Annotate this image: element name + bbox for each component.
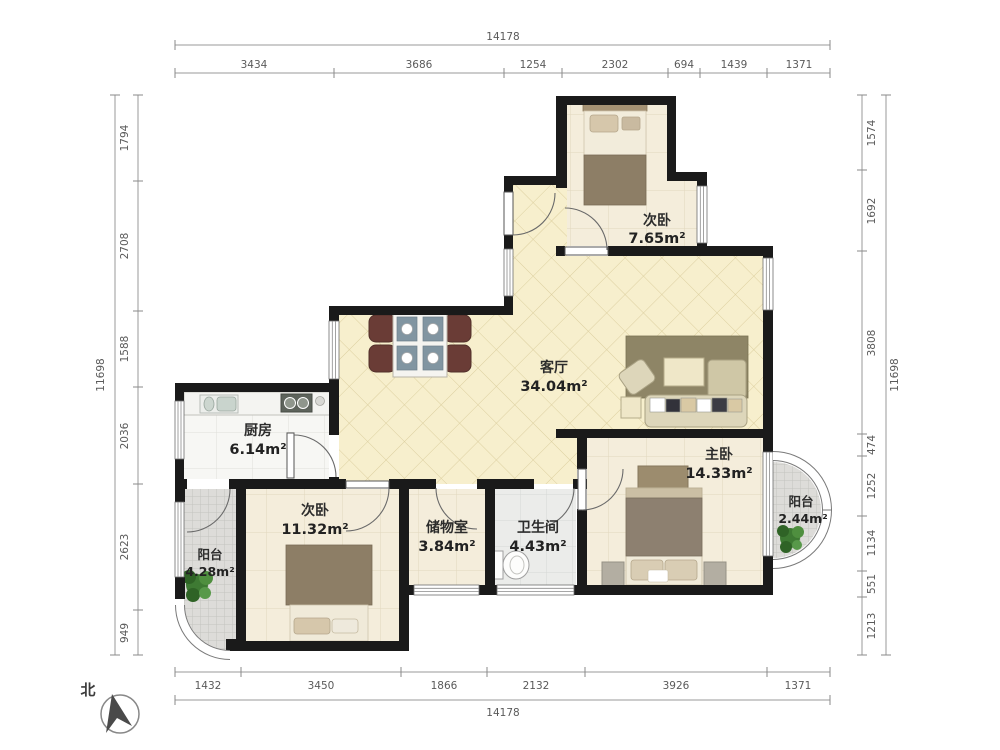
window <box>329 321 339 379</box>
dining-chair <box>369 315 396 342</box>
dim-label: 1866 <box>431 680 458 692</box>
window <box>763 258 773 310</box>
compass: 北 <box>80 682 139 733</box>
headboard <box>638 466 688 488</box>
dim-label: 2708 <box>119 233 131 260</box>
dim-label: 3686 <box>406 59 433 71</box>
dim-label: 1254 <box>520 59 547 71</box>
balcony-slider-window <box>763 452 773 556</box>
room-bath-area: 4.43m² <box>509 539 566 555</box>
dim-label: 2302 <box>602 59 629 71</box>
dining-chair <box>444 315 471 342</box>
coffee-table <box>664 358 704 386</box>
dim-label: 1252 <box>866 473 878 500</box>
bed-top-bedroom <box>583 103 647 205</box>
floor-plan-page: 次卧 7.65m² 客厅 34.04m² 厨房 6.14m² 次卧 11.32m… <box>0 0 1000 750</box>
dining-chair <box>369 345 396 372</box>
room-bath-name: 卫生间 <box>517 519 559 535</box>
room-balcony-right-area: 2.44m² <box>778 511 827 526</box>
sofa-group <box>617 336 748 427</box>
room-bedroom-left-name: 次卧 <box>301 502 329 518</box>
side-table <box>621 397 641 418</box>
north-label: 北 <box>80 682 95 699</box>
entry-floor <box>513 185 567 256</box>
living-floor-upper <box>513 256 763 315</box>
room-bedroom-top-area: 7.65m² <box>628 231 685 247</box>
dim-label: 474 <box>866 435 878 455</box>
room-kitchen-area: 6.14m² <box>229 442 286 458</box>
window <box>175 502 184 577</box>
dining-chair <box>444 345 471 372</box>
dim-label: 1213 <box>866 613 878 640</box>
dim-label: 11698 <box>95 358 107 391</box>
bed-left-bedroom <box>286 545 372 641</box>
room-balcony-right-name: 阳台 <box>788 494 813 509</box>
dim-label: 1439 <box>721 59 748 71</box>
dim-label: 1432 <box>195 680 222 692</box>
room-storage-name: 储物室 <box>425 519 468 535</box>
nightstand <box>704 562 726 586</box>
dim-label: 1794 <box>119 124 131 151</box>
window <box>497 585 574 595</box>
floor-plan: 次卧 7.65m² 客厅 34.04m² 厨房 6.14m² 次卧 11.32m… <box>0 0 1000 750</box>
room-kitchen-name: 厨房 <box>244 422 272 438</box>
dimensions-left: 11698 1794 2708 1588 2036 2623 949 <box>95 95 143 655</box>
dim-label: 2036 <box>119 422 131 449</box>
dim-label: 2132 <box>523 680 550 692</box>
dim-label: 3450 <box>308 680 335 692</box>
room-master-area: 14.33m² <box>685 466 752 482</box>
nightstand <box>602 562 624 586</box>
dim-label: 1371 <box>786 59 813 71</box>
window <box>414 585 479 595</box>
dim-label: 3434 <box>241 59 268 71</box>
window <box>175 401 184 459</box>
room-bedroom-top-name: 次卧 <box>643 212 671 228</box>
dim-label: 1588 <box>119 336 131 363</box>
dimensions-right: 1574 1692 3808 474 1252 1134 551 1213 11… <box>857 95 901 655</box>
dim-label: 3808 <box>866 330 878 357</box>
window <box>697 186 707 243</box>
storage-floor <box>409 489 485 585</box>
hallway-floor <box>339 438 577 484</box>
room-storage-area: 3.84m² <box>418 539 475 555</box>
room-master-name: 主卧 <box>705 446 733 462</box>
chaise <box>708 360 746 398</box>
dim-label: 1692 <box>866 198 878 225</box>
dimensions-bottom: 1432 3450 1866 2132 3926 1371 14178 <box>175 667 830 719</box>
dim-label: 2623 <box>119 534 131 561</box>
kitchen-counter <box>184 392 332 415</box>
dim-label: 694 <box>674 59 694 71</box>
room-living-area: 34.04m² <box>520 379 587 395</box>
north-arrow-icon <box>106 694 132 733</box>
room-living-name: 客厅 <box>539 359 568 375</box>
dim-label: 14178 <box>486 707 519 719</box>
dim-label: 949 <box>119 623 131 643</box>
dim-label: 1134 <box>866 529 878 556</box>
sink-icon <box>200 395 238 413</box>
dim-label: 551 <box>866 574 878 594</box>
room-bedroom-left-area: 11.32m² <box>281 522 348 538</box>
dim-label: 11698 <box>889 358 901 391</box>
dim-label: 3926 <box>663 680 690 692</box>
room-balcony-left-area: 4.28m² <box>185 564 234 579</box>
room-balcony-left-name: 阳台 <box>197 547 222 562</box>
window <box>504 249 513 296</box>
toilet-icon <box>494 551 529 579</box>
dim-label: 1371 <box>785 680 812 692</box>
dim-label: 1574 <box>866 119 878 146</box>
dimensions-top: 14178 3434 3686 1254 2302 694 1439 1371 <box>175 31 830 78</box>
dim-label: 14178 <box>486 31 519 43</box>
